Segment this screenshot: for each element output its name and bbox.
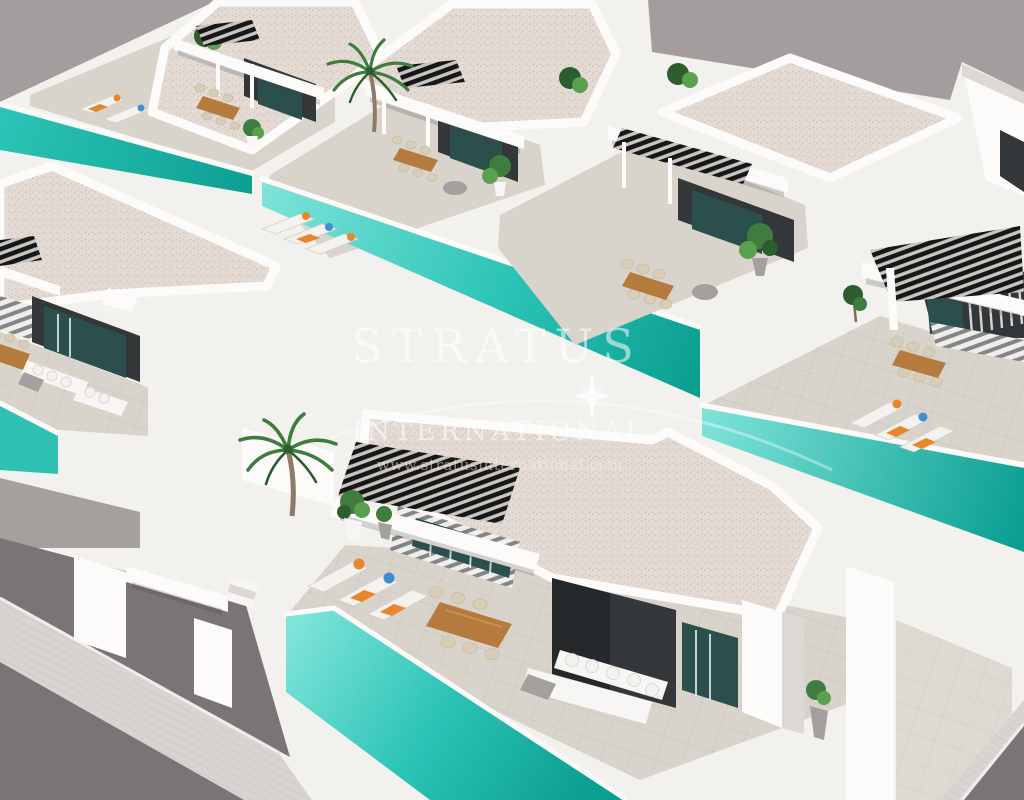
render-image: STRATUS INTERNATIONAL www.stratusinterna… (0, 0, 1024, 800)
column (382, 90, 386, 134)
corner-wall (742, 600, 782, 728)
wall (846, 566, 894, 800)
villa-development-render: STRATUS INTERNATIONAL www.stratusinterna… (0, 0, 1024, 800)
column (622, 142, 626, 188)
daybed (443, 181, 467, 195)
column (668, 158, 672, 204)
watermark-website: www.stratusinternational.com (377, 456, 623, 474)
column (250, 64, 254, 108)
wall (194, 618, 232, 708)
watermark-brand: STRATUS (351, 319, 643, 373)
watermark-brand-2: INTERNATIONAL (352, 417, 647, 447)
column (426, 104, 430, 148)
daybed (692, 284, 718, 300)
